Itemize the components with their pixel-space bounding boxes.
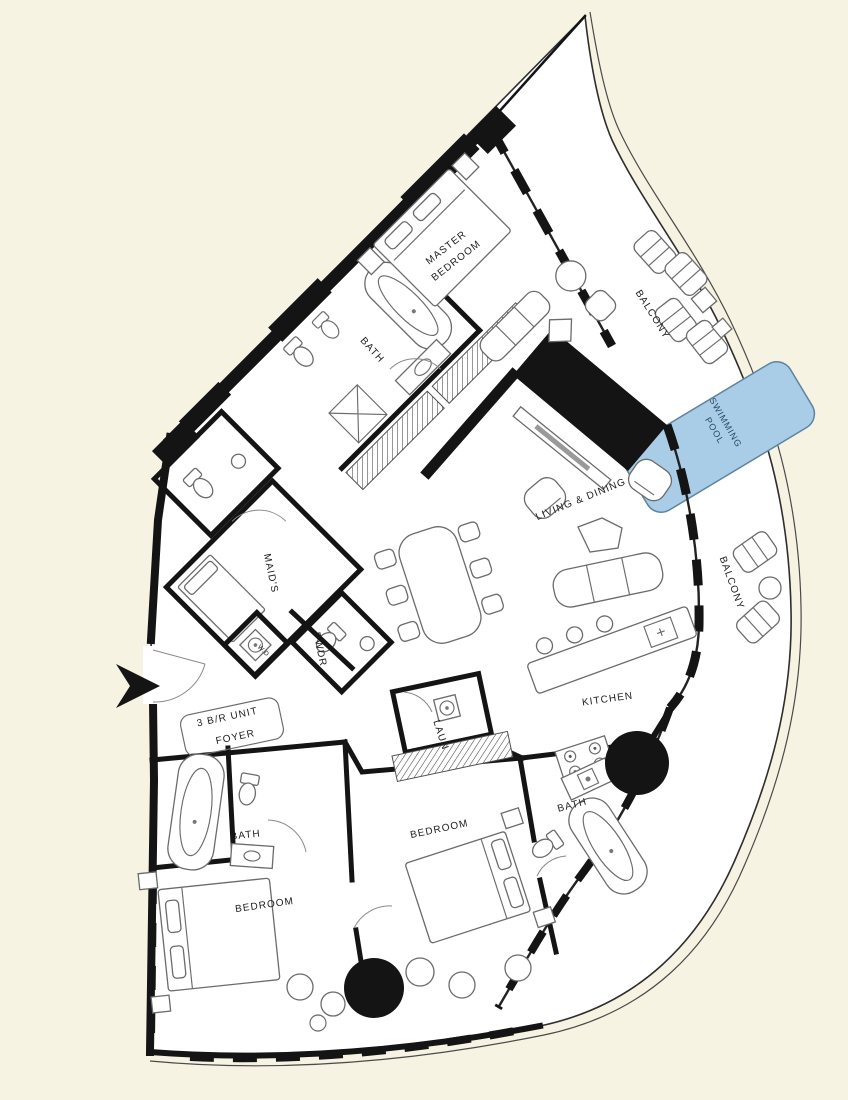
washer-icon: [434, 695, 461, 722]
pouf-chair: [449, 972, 475, 998]
bath-left-vanity: [230, 844, 273, 869]
door-gap: [143, 646, 158, 704]
pouf-chair: [321, 992, 345, 1016]
pouf-chair: [287, 974, 313, 1000]
floorplan-drawing: MASTER BEDROOM BATH MAID'S PWDR W.D 3 B/…: [0, 0, 848, 1100]
column: [605, 731, 669, 795]
pouf-chair: [406, 958, 434, 986]
column: [344, 958, 404, 1018]
floorplan-page: MASTER BEDROOM BATH MAID'S PWDR W.D 3 B/…: [0, 0, 848, 1100]
balcony-round-table: [759, 577, 781, 599]
pouf-chair: [505, 955, 531, 981]
